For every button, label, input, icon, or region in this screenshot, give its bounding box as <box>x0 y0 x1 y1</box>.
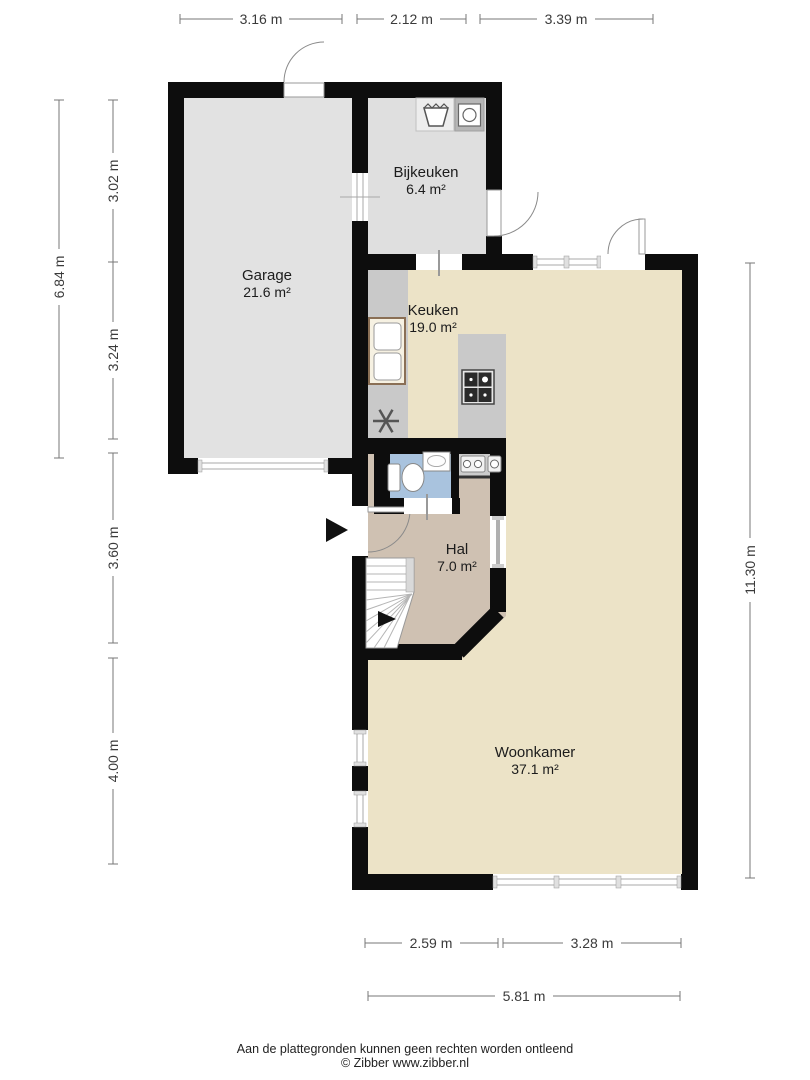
woonkamer-label: Woonkamer <box>495 744 576 761</box>
bijkeuken-area: 6.4 m² <box>406 181 446 197</box>
dim-left-3: 3.60 m <box>105 527 121 570</box>
toilet-fixture <box>388 464 424 492</box>
garage-area: 21.6 m² <box>243 284 291 300</box>
bijkeuken-label: Bijkeuken <box>393 164 458 181</box>
dim-bottom-total: 5.81 m <box>503 988 546 1004</box>
stair-handrail <box>406 558 414 592</box>
footer-credit: © Zibber www.zibber.nl <box>341 1056 469 1070</box>
dim-left-outer: 6.84 m <box>51 256 67 299</box>
dim-top-1: 3.16 m <box>240 11 283 27</box>
garage-label: Garage <box>242 267 292 284</box>
dim-bottom-2: 3.28 m <box>571 935 614 951</box>
entrance-arrow-icon <box>326 518 348 542</box>
hal-label: Hal <box>446 541 469 558</box>
footer: Aan de plattegronden kunnen geen rechten… <box>237 1042 573 1070</box>
dim-top-3: 3.39 m <box>545 11 588 27</box>
window-woonkamer-left-2 <box>352 791 368 827</box>
floorplan-page: Garage 21.6 m² Bijkeuken 6.4 m² Keuken 1… <box>0 0 810 1080</box>
washbasin-icon <box>423 452 450 471</box>
floors <box>176 90 690 882</box>
hall-counter-appliance-icons <box>461 456 501 472</box>
floorplan-canvas: Garage 21.6 m² Bijkeuken 6.4 m² Keuken 1… <box>0 0 810 1080</box>
hal-area: 7.0 m² <box>437 558 477 574</box>
window-woonkamer-bottom <box>493 874 681 890</box>
dim-top-2: 2.12 m <box>390 11 433 27</box>
door-garage-entry <box>284 42 324 97</box>
keuken-area: 19.0 m² <box>409 319 457 335</box>
window-hal-interior <box>490 516 506 568</box>
cooktop-icon <box>462 370 494 404</box>
door-bijkeuken-side <box>487 190 538 236</box>
laundry-tub-icon <box>416 98 454 131</box>
window-keuken-top <box>533 254 601 270</box>
footer-disclaimer: Aan de plattegronden kunnen geen rechten… <box>237 1042 573 1056</box>
washing-machine-icon <box>455 98 484 131</box>
kitchen-sink-unit <box>369 318 405 384</box>
woonkamer-area: 37.1 m² <box>511 761 559 777</box>
dim-bottom-1: 2.59 m <box>410 935 453 951</box>
keuken-label: Keuken <box>408 302 459 319</box>
window-woonkamer-left-1 <box>352 730 368 766</box>
window-garage-bottom <box>198 458 328 474</box>
dim-left-4: 4.00 m <box>105 740 121 783</box>
dim-right: 11.30 m <box>742 545 758 595</box>
dim-left-2: 3.24 m <box>105 329 121 372</box>
dim-left-1: 3.02 m <box>105 160 121 203</box>
door-keuken-back <box>601 219 645 270</box>
